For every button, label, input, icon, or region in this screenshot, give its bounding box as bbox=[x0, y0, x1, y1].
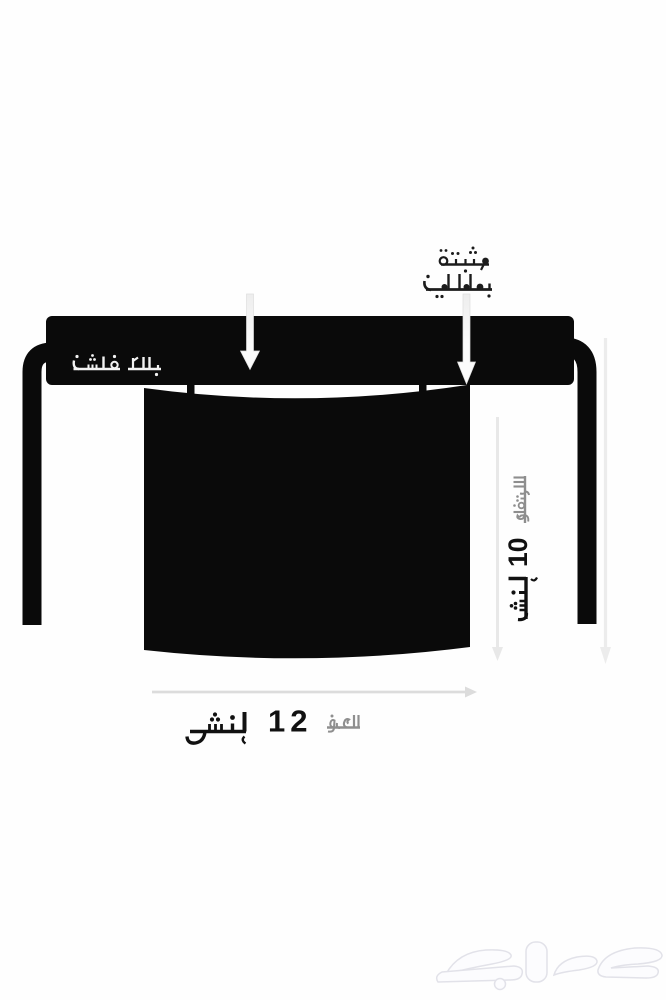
svg-text:10: 10 bbox=[503, 538, 533, 567]
svg-text:12: 12 bbox=[268, 704, 312, 739]
